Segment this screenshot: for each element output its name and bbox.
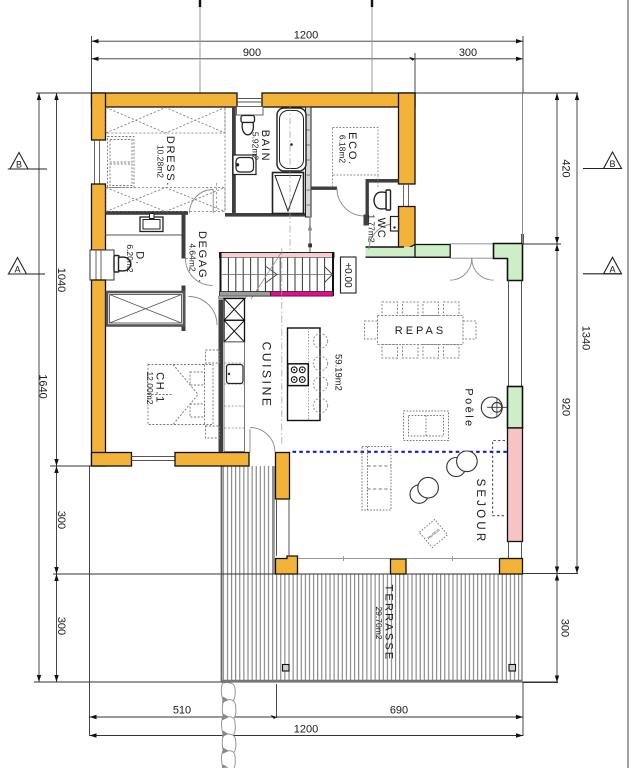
svg-text:900: 900 <box>243 47 261 59</box>
svg-text:CUISINE: CUISINE <box>260 342 274 409</box>
svg-text:300: 300 <box>459 47 477 59</box>
svg-text:A: A <box>609 264 615 274</box>
svg-text:6.20m2: 6.20m2 <box>125 244 135 273</box>
svg-text:A: A <box>14 265 20 275</box>
svg-text:300: 300 <box>559 619 571 637</box>
svg-text:B: B <box>16 160 22 170</box>
svg-text:920: 920 <box>560 398 572 416</box>
svg-text:REPAS: REPAS <box>395 325 446 337</box>
svg-text:1040: 1040 <box>55 268 67 292</box>
svg-text:1200: 1200 <box>294 30 318 42</box>
svg-text:SEJOUR: SEJOUR <box>474 479 486 545</box>
svg-text:690: 690 <box>390 705 408 717</box>
svg-text:10.28m2: 10.28m2 <box>156 145 166 178</box>
svg-text:6.18m2: 6.18m2 <box>338 135 348 164</box>
svg-text:1340: 1340 <box>580 326 592 350</box>
svg-text:12.00m2: 12.00m2 <box>145 371 155 404</box>
svg-text:29.70m2: 29.70m2 <box>374 606 384 639</box>
svg-text:300: 300 <box>55 511 67 529</box>
svg-text:1640: 1640 <box>37 374 49 398</box>
svg-text:510: 510 <box>173 705 191 717</box>
svg-text:4.64m2: 4.64m2 <box>188 243 198 272</box>
svg-text:+0.00: +0.00 <box>342 262 353 288</box>
svg-text:1200: 1200 <box>294 724 318 736</box>
svg-text:300: 300 <box>55 617 67 635</box>
svg-text:59.19m2: 59.19m2 <box>333 354 344 391</box>
svg-text:1.77m2: 1.77m2 <box>367 214 377 243</box>
svg-text:5.92m2: 5.92m2 <box>251 132 261 161</box>
svg-text:420: 420 <box>560 159 572 177</box>
svg-text:B: B <box>609 159 615 169</box>
svg-text:Poêle: Poêle <box>463 388 475 428</box>
